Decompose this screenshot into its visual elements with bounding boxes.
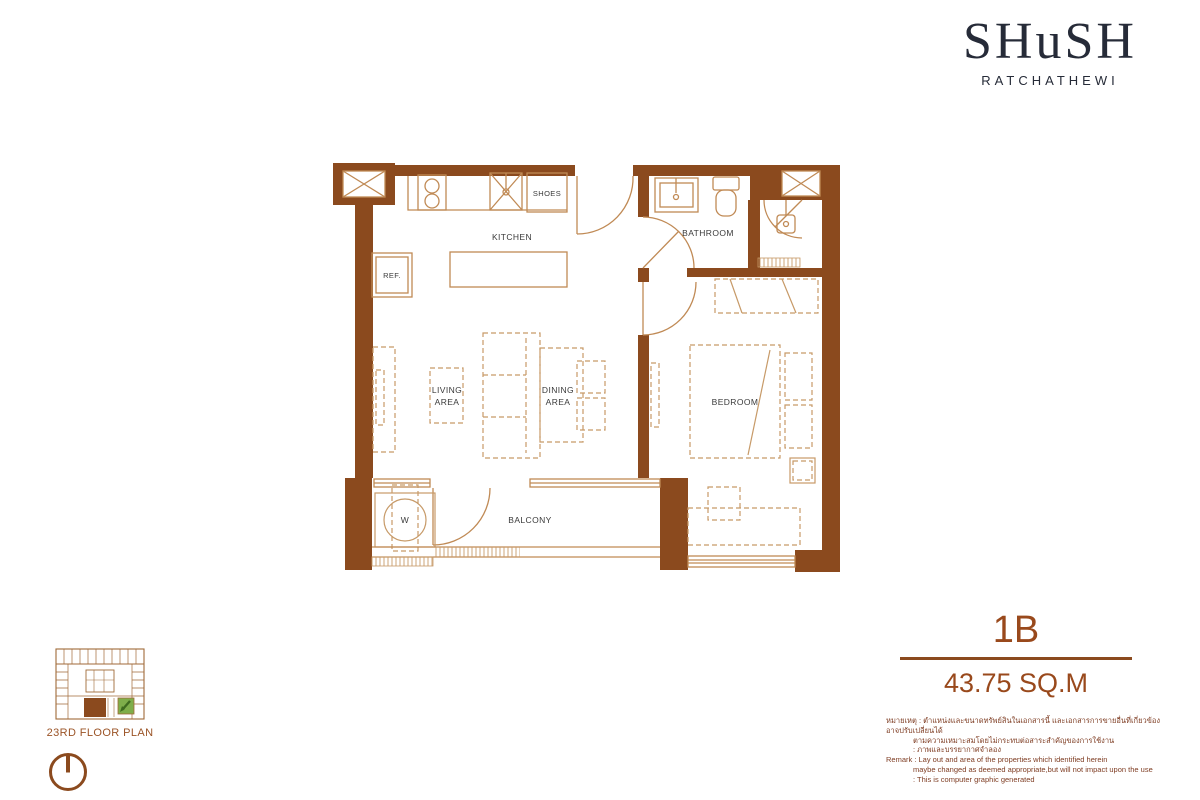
dining-chair (577, 398, 605, 430)
toilet-icon (713, 177, 739, 216)
washer-label: W (401, 515, 409, 525)
shower-threshold (758, 258, 800, 267)
floor-plan: KITCHEN SHOES REF. BATHROOM LIVING AREA … (330, 155, 842, 575)
remark-line: หมายเหตุ : ตำแหน่งและขนาดทรัพย์สินในเอกส… (886, 716, 1166, 736)
north-compass-icon (46, 746, 90, 799)
dining-chair (577, 361, 605, 393)
bedroom-label: BEDROOM (712, 397, 759, 407)
shaft-top-left (343, 171, 385, 197)
kitchen-sink-icon (490, 173, 522, 210)
sofa (483, 333, 540, 458)
bedroom-window (688, 556, 795, 567)
balcony-door (433, 488, 490, 545)
shaft-top-right (782, 171, 820, 196)
floor-plan-drawing: KITCHEN SHOES REF. BATHROOM LIVING AREA … (330, 155, 842, 575)
ref-label: REF. (383, 271, 401, 280)
stove-icon (418, 175, 446, 210)
kitchen-label: KITCHEN (492, 232, 532, 242)
tv-console (373, 347, 395, 452)
unit-type: 1B (900, 610, 1132, 650)
kitchen-island (450, 252, 567, 287)
brand-logo: SHuSH RATCHATHEWI (930, 14, 1170, 88)
pillow (785, 405, 812, 448)
remark-line: maybe changed as deemed appropriate,but … (886, 765, 1166, 775)
living-area-label: AREA (435, 397, 460, 407)
remark-line: Remark : Lay out and area of the propert… (886, 755, 1166, 765)
bedroom-tv-console (651, 363, 659, 427)
bedroom-door (643, 282, 696, 335)
shower-icon (758, 200, 802, 267)
dining-area-label: AREA (546, 397, 571, 407)
living-area-label: LIVING (432, 385, 462, 395)
desk-chair (708, 487, 740, 520)
key-plan-caption: 23RD FLOOR PLAN (36, 727, 164, 739)
pillow (785, 353, 812, 400)
balcony-label: BALCONY (508, 515, 551, 525)
wardrobe (715, 279, 818, 313)
shoes-label: SHOES (533, 189, 561, 198)
unit-divider-line (900, 657, 1132, 660)
bathroom-sink-icon (655, 178, 698, 212)
key-plan (52, 646, 148, 731)
coffee-table (430, 368, 463, 423)
unit-area: 43.75 SQ.M (900, 668, 1132, 698)
balcony-railing (372, 547, 660, 566)
remark-line: : This is computer graphic generated (886, 775, 1166, 785)
bathroom-door (643, 217, 694, 268)
dining-area-label: DINING (542, 385, 574, 395)
entrance-door (577, 176, 633, 234)
bathroom-label: BATHROOM (682, 228, 734, 238)
brand-name: SHuSH (930, 14, 1170, 70)
side-table (790, 458, 815, 483)
remark-line: : ภาพและบรรยากาศจำลอง (886, 745, 1166, 755)
unit-info: 1B 43.75 SQ.M (900, 610, 1132, 698)
walls (333, 163, 840, 572)
balcony-windows (374, 479, 660, 487)
remark-block: หมายเหตุ : ตำแหน่งและขนาดทรัพย์สินในเอกส… (886, 716, 1166, 785)
key-plan-drawing (52, 646, 148, 726)
highlighted-unit (84, 698, 106, 717)
remark-line: ตามความเหมาะสมโดยไม่กระทบต่อสาระสำคัญของ… (886, 736, 1166, 746)
brand-location: RATCHATHEWI (930, 73, 1170, 88)
desk (688, 508, 800, 545)
unit-location-marker (118, 698, 134, 714)
